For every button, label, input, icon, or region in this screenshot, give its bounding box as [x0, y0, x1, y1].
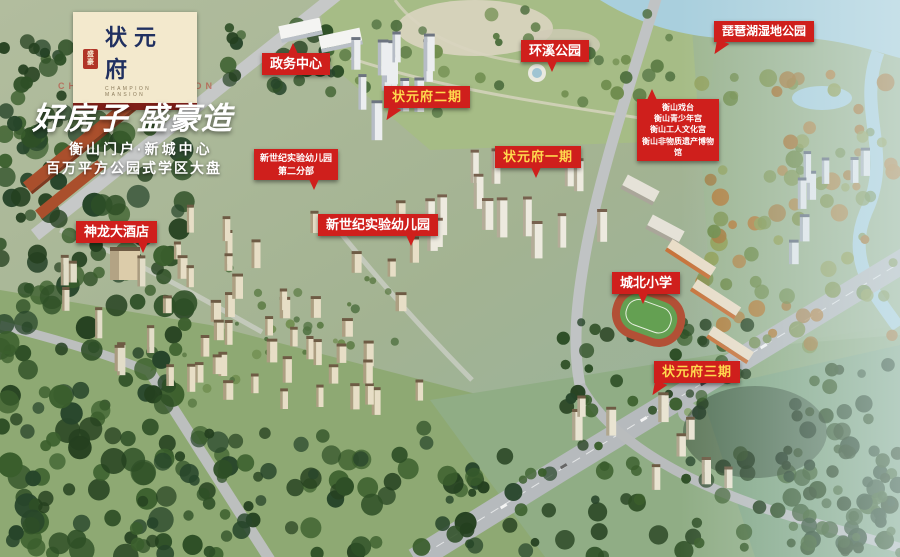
logo-title: 状元府 — [105, 20, 189, 84]
label-text: 城北小学 — [620, 275, 672, 290]
haze-overlay — [680, 0, 900, 557]
label-text: 状元府三期 — [662, 364, 732, 379]
label-text: 环溪公园 — [529, 43, 581, 58]
label-text: 新世纪实验幼儿园 — [326, 217, 430, 232]
label-phase2: 状元府二期 — [384, 86, 470, 108]
label-text: 琵琶湖湿地公园 — [722, 24, 806, 38]
masterplan-poster: 盛豪 状元府 CHAMPION MANSION CHAMPION MANSION… — [0, 0, 900, 557]
pointer-arrow-icon — [138, 242, 148, 253]
label-culture-facilities: 衡山戏台 衡山青少年宫 衡山工人文化宫 衡山非物质遗产博物馆 — [637, 99, 719, 161]
label-kindergarten-branch: 新世纪实验幼儿园 第二分部 — [254, 149, 338, 180]
label-pipa-lake-wetland-park: 琵琶湖湿地公园 — [714, 21, 814, 42]
label-kindergarten: 新世纪实验幼儿园 — [318, 214, 438, 236]
headline: 好房子 盛豪造 — [32, 93, 233, 138]
pointer-arrow-icon — [547, 61, 557, 72]
label-text: 政务中心 — [270, 56, 322, 71]
label-text: 衡山工人文化宫 — [642, 124, 714, 135]
park-pond — [532, 68, 542, 78]
label-government-center: 政务中心 — [262, 53, 330, 75]
label-text: 状元府一期 — [503, 149, 573, 164]
pointer-arrow-icon — [531, 167, 541, 178]
label-phase1: 状元府一期 — [495, 146, 581, 168]
tagline-scale: 百万平方公园式学区大盘 — [46, 158, 222, 178]
label-text: 神龙大酒店 — [84, 224, 149, 239]
pointer-arrow-icon — [647, 89, 657, 100]
brand-seal-icon: 盛豪 — [83, 49, 98, 68]
label-text: 衡山戏台 — [642, 102, 714, 113]
label-text: 第二分部 — [260, 165, 332, 178]
label-huanxi-park: 环溪公园 — [521, 40, 589, 62]
label-text: 新世纪实验幼儿园 — [260, 152, 332, 165]
tagline-location: 衡山门户·新城中心 — [69, 139, 213, 159]
pointer-arrow-icon — [309, 179, 319, 190]
label-primary-school: 城北小学 — [612, 272, 680, 294]
label-text: 衡山青少年宫 — [642, 113, 714, 124]
label-hotel: 神龙大酒店 — [76, 221, 157, 243]
label-text: 衡山非物质遗产博物馆 — [642, 136, 714, 158]
label-phase3: 状元府三期 — [654, 361, 740, 383]
pointer-arrow-icon — [288, 43, 298, 54]
pointer-arrow-icon — [406, 235, 416, 246]
pointer-arrow-icon — [638, 293, 648, 304]
hotel-building — [110, 247, 140, 280]
label-text: 状元府二期 — [392, 89, 462, 104]
